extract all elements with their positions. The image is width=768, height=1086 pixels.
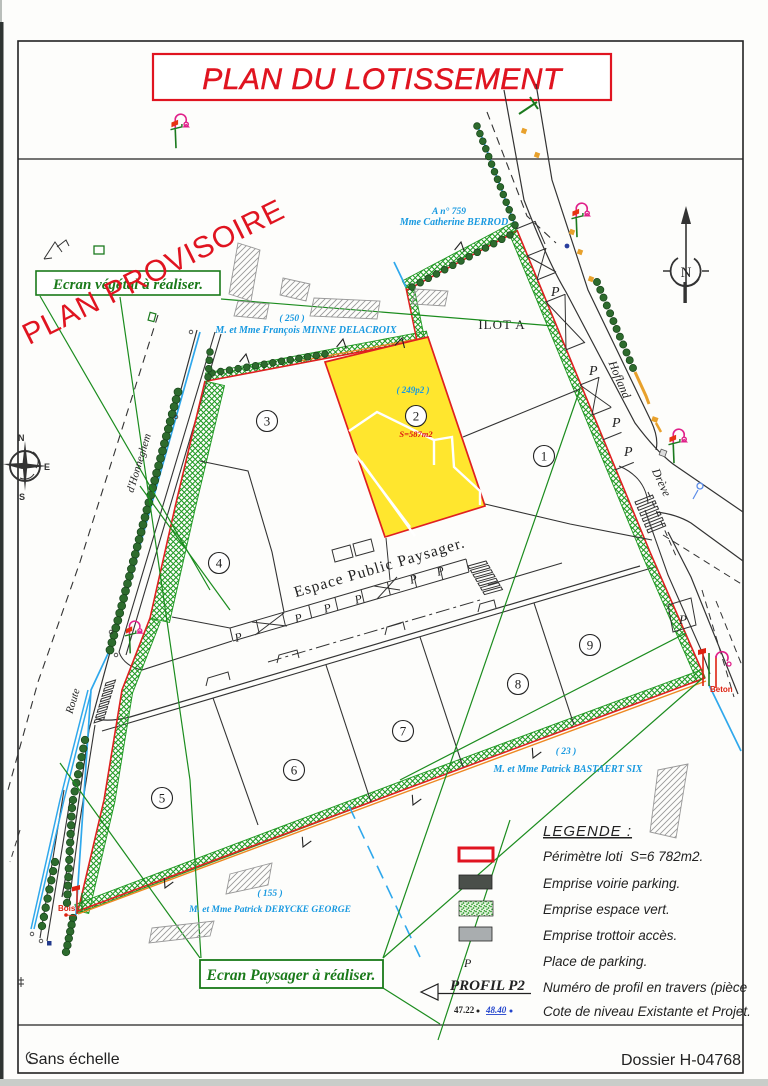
svg-text:Place de parking.: Place de parking.	[543, 954, 647, 969]
svg-text:Emprise voirie parking.: Emprise voirie parking.	[543, 876, 680, 891]
svg-text:P: P	[623, 445, 633, 460]
svg-text:5: 5	[159, 791, 166, 806]
svg-text:1: 1	[541, 449, 548, 464]
svg-text:PLAN DU LOTISSEMENT: PLAN DU LOTISSEMENT	[202, 63, 564, 96]
svg-text:Bois: Bois	[58, 904, 76, 913]
svg-text:E: E	[44, 462, 50, 472]
svg-text:( 249p2 ): ( 249p2 )	[397, 385, 430, 395]
svg-text:M. et Mme Patrick DERYCKE GEOR: M. et Mme Patrick DERYCKE GEORGE	[188, 905, 351, 915]
svg-text:Emprise espace vert.: Emprise espace vert.	[543, 902, 670, 917]
svg-text:Sans échelle: Sans échelle	[28, 1051, 120, 1068]
svg-text:PROFIL P2: PROFIL P2	[450, 978, 525, 994]
svg-text:8: 8	[515, 677, 522, 692]
svg-text:Ecran Paysager à réaliser.: Ecran Paysager à réaliser.	[206, 967, 376, 984]
svg-text:7: 7	[400, 724, 407, 739]
svg-text:P: P	[463, 956, 472, 970]
svg-text:S: S	[19, 492, 25, 502]
svg-text:ILOT A: ILOT A	[478, 317, 525, 332]
svg-text:6: 6	[291, 763, 298, 778]
svg-text:Emprise trottoir accès.: Emprise trottoir accès.	[543, 928, 677, 943]
svg-text:2: 2	[413, 409, 420, 424]
svg-text:( 23 ): ( 23 )	[556, 746, 577, 757]
svg-text:P: P	[550, 285, 560, 300]
svg-text:A n° 759: A n° 759	[431, 206, 466, 217]
svg-text:N: N	[681, 265, 692, 281]
svg-text:( 250 ): ( 250 )	[279, 313, 304, 324]
svg-text:9: 9	[587, 638, 594, 653]
svg-text:S=587m2: S=587m2	[399, 429, 433, 439]
svg-text:P: P	[611, 416, 621, 431]
svg-text:Mme Catherine BERROD: Mme Catherine BERROD	[399, 217, 508, 228]
svg-text:M. et Mme François MINNE DELAC: M. et Mme François MINNE DELACROIX	[214, 325, 396, 336]
svg-text:3: 3	[264, 414, 271, 429]
svg-text:4: 4	[216, 556, 223, 571]
svg-text:Cote de niveau Existante et Pr: Cote de niveau Existante et Projet.	[543, 1004, 751, 1019]
svg-text:LEGENDE :: LEGENDE :	[543, 823, 632, 840]
svg-text:Dossier H-04768: Dossier H-04768	[621, 1052, 741, 1069]
svg-text:47.22: 47.22	[454, 1005, 475, 1015]
svg-text:Beton: Beton	[710, 685, 733, 694]
svg-text:Périmètre loti S=6 782m2.: Périmètre loti S=6 782m2.	[543, 849, 703, 864]
svg-text:N: N	[18, 433, 25, 443]
svg-text:M. et Mme Patrick BASTAERT SIX: M. et Mme Patrick BASTAERT SIX	[493, 764, 643, 775]
svg-text:48.40: 48.40	[485, 1005, 507, 1015]
svg-text:( 155 ): ( 155 )	[257, 888, 282, 899]
svg-text:P: P	[678, 612, 687, 627]
svg-text:Numéro de profil en travers (p: Numéro de profil en travers (pièce	[543, 980, 747, 995]
svg-text:P: P	[588, 364, 598, 379]
